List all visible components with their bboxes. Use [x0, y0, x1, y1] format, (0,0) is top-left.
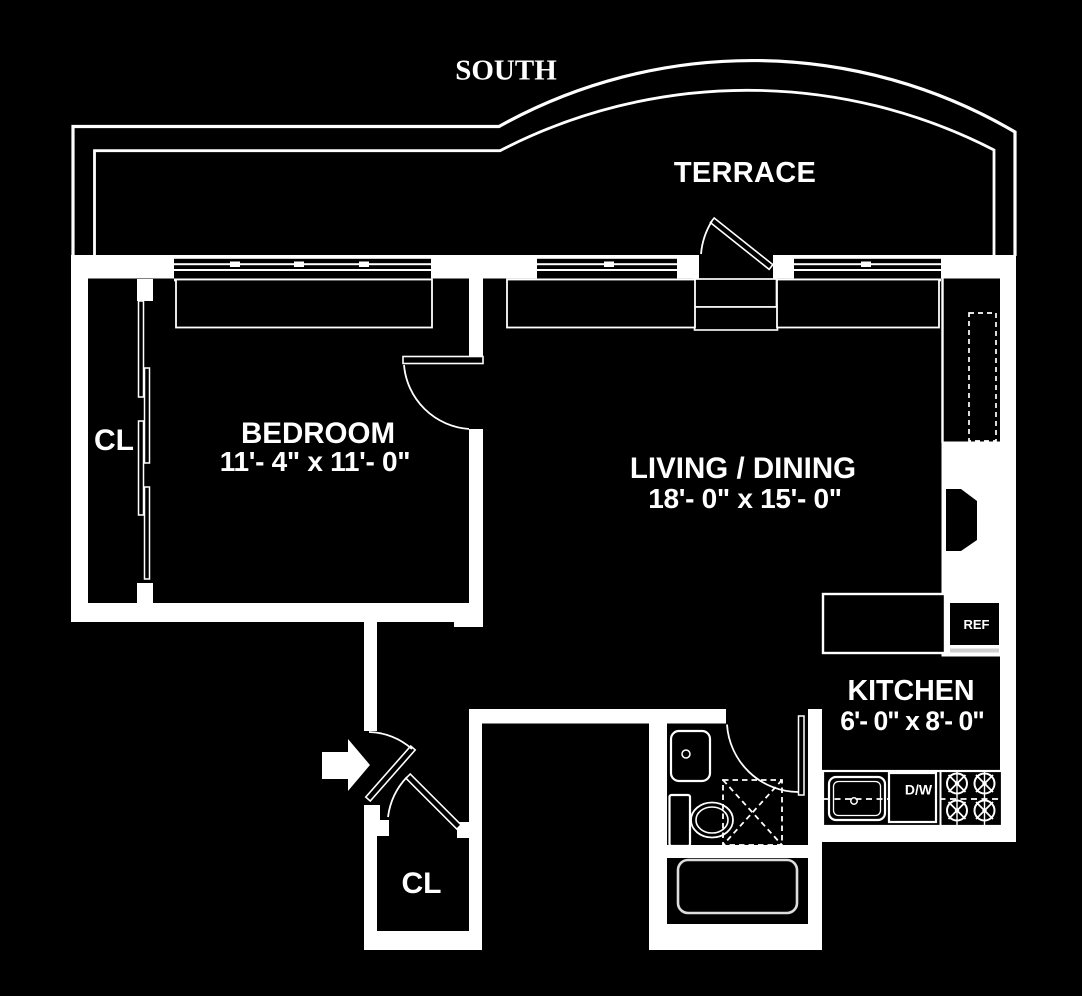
svg-text:6'- 0" x 8'- 0": 6'- 0" x 8'- 0": [840, 706, 984, 736]
svg-text:CL: CL: [402, 867, 442, 900]
svg-text:KITCHEN: KITCHEN: [847, 675, 974, 707]
svg-text:18'- 0" x 15'- 0": 18'- 0" x 15'- 0": [648, 483, 842, 514]
svg-text:SOUTH: SOUTH: [455, 55, 557, 87]
svg-text:CL: CL: [94, 424, 134, 457]
svg-text:LIVING / DINING: LIVING / DINING: [630, 452, 856, 485]
svg-text:D/W: D/W: [905, 782, 933, 798]
svg-text:TERRACE: TERRACE: [674, 157, 816, 189]
svg-text:11'- 4" x 11'- 0": 11'- 4" x 11'- 0": [220, 446, 410, 477]
svg-text:REF: REF: [964, 617, 990, 632]
